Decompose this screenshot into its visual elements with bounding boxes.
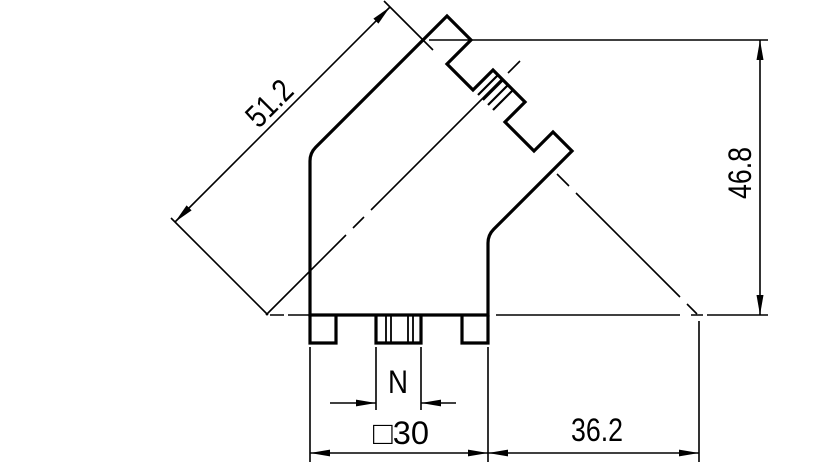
technical-drawing-canvas: 51.2 46.8 N □30 36.2 <box>0 0 827 472</box>
dim-label-notch: N <box>388 364 408 400</box>
centerline-axis <box>266 61 520 315</box>
dim-label-height: 46.8 <box>722 147 758 199</box>
dim-label-diagonal: 51.2 <box>238 72 300 134</box>
dim-label-body-width: □30 <box>373 415 429 451</box>
dim-label-face-offset: 36.2 <box>571 412 623 448</box>
extension-lines <box>171 1 433 315</box>
extension-lines <box>310 321 699 462</box>
technical-drawing-page: 51.2 46.8 N □30 36.2 <box>0 0 827 472</box>
part-outline <box>310 16 572 315</box>
dim-diagonal-51-2: 51.2 <box>171 1 433 315</box>
centerlines <box>266 61 768 315</box>
arrowhead <box>757 40 764 60</box>
dim-notch-n: N <box>330 347 456 410</box>
arrowhead <box>757 295 764 315</box>
centerline-face-plane <box>557 174 697 314</box>
mounting-foot-left <box>310 315 336 343</box>
arrowhead <box>468 450 488 457</box>
terminal-block <box>376 315 421 343</box>
mounting-foot-right <box>462 315 488 343</box>
dim-bottom-row: □30 36.2 <box>310 321 699 462</box>
part-geometry <box>310 16 572 343</box>
arrowhead <box>488 450 508 457</box>
arrowhead <box>421 400 441 407</box>
terminal-block-pins <box>386 316 413 342</box>
arrowhead <box>679 450 699 457</box>
arrowhead <box>356 400 376 407</box>
arrowhead <box>310 450 330 457</box>
